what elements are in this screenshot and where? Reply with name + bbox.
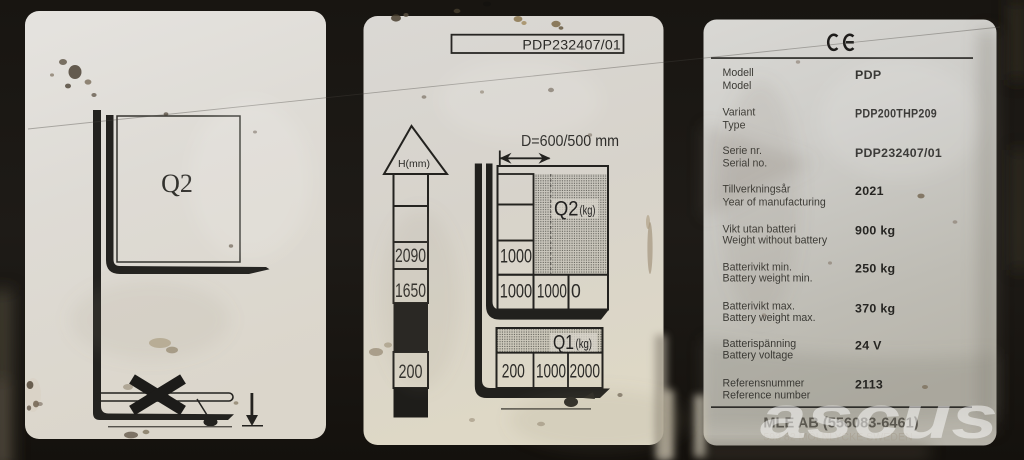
svg-text:2021: 2021 <box>855 184 884 198</box>
svg-text:900 kg: 900 kg <box>855 224 895 238</box>
svg-text:370 kg: 370 kg <box>855 302 895 316</box>
svg-text:Q2: Q2 <box>554 198 579 221</box>
svg-text:2000: 2000 <box>570 362 601 383</box>
svg-text:1000: 1000 <box>537 282 567 303</box>
svg-text:Battery voltage: Battery voltage <box>723 350 794 362</box>
svg-text:1000: 1000 <box>500 247 532 268</box>
svg-text:200: 200 <box>502 362 525 383</box>
svg-text:ascus: ascus <box>760 384 998 451</box>
svg-text:24 V: 24 V <box>855 339 882 353</box>
svg-text:0: 0 <box>571 282 581 303</box>
svg-text:(kg): (kg) <box>576 336 593 351</box>
svg-text:Batterispänning: Batterispänning <box>723 338 797 350</box>
svg-text:250 kg: 250 kg <box>855 262 895 276</box>
svg-text:H(mm): H(mm) <box>398 158 430 170</box>
svg-text:(kg): (kg) <box>580 203 596 218</box>
svg-text:Q1: Q1 <box>553 332 574 354</box>
svg-text:Q2: Q2 <box>161 169 193 198</box>
svg-text:1000: 1000 <box>500 282 533 303</box>
svg-text:Modell: Modell <box>723 67 754 79</box>
svg-text:1000: 1000 <box>536 362 566 383</box>
svg-text:PDP232407/01: PDP232407/01 <box>522 38 621 54</box>
